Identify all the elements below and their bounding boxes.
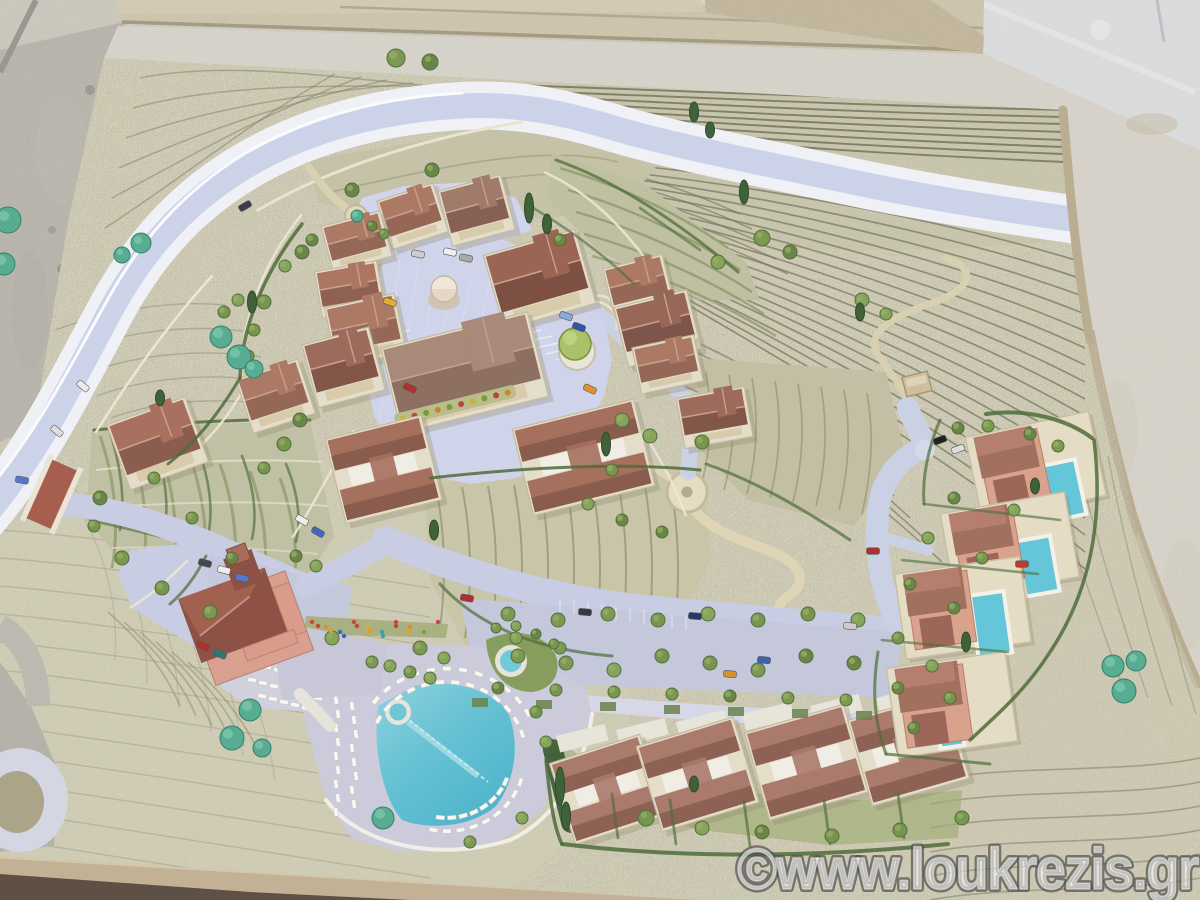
svg-text:©www.loukrezis.gr: ©www.loukrezis.gr	[737, 836, 1199, 900]
